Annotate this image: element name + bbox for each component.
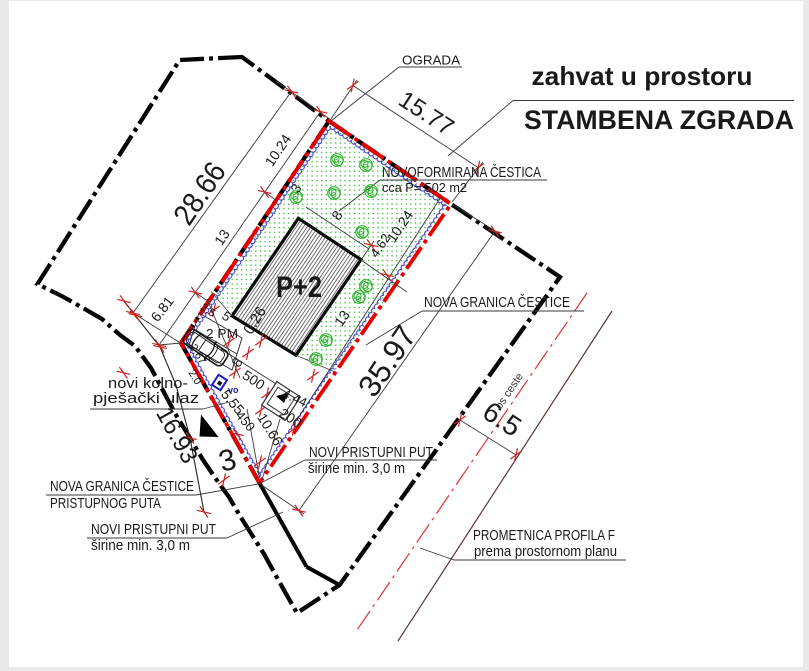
svg-text:NOVA GRANICA ČESTICE: NOVA GRANICA ČESTICE	[50, 478, 194, 495]
svg-text:cca P= 502 m2: cca P= 502 m2	[382, 180, 467, 195]
svg-text:NOVOFORMIRANA ČESTICA: NOVOFORMIRANA ČESTICA	[382, 164, 541, 181]
svg-text:NOVI PRISTUPNI PUT: NOVI PRISTUPNI PUT	[91, 521, 216, 538]
svg-text:zahvat u prostoru: zahvat u prostoru	[532, 61, 753, 91]
svg-text:NOVI PRISTUPNI PUT: NOVI PRISTUPNI PUT	[309, 444, 433, 461]
svg-text:STAMBENA ZGRADA: STAMBENA ZGRADA	[524, 105, 794, 135]
svg-text:OGRADA: OGRADA	[402, 53, 460, 68]
svg-text:prema prostornom planu: prema prostornom planu	[474, 543, 617, 560]
svg-text:P+2: P+2	[276, 271, 322, 304]
svg-text:PROMETNICA PROFILA F: PROMETNICA PROFILA F	[473, 527, 615, 544]
svg-text:širine min. 3,0 m: širine min. 3,0 m	[91, 537, 190, 554]
svg-text:pješački ulaz: pješački ulaz	[93, 390, 199, 407]
svg-text:NOVA GRANICA ČESTICE: NOVA GRANICA ČESTICE	[424, 294, 570, 311]
svg-text:širine min. 3,0 m: širine min. 3,0 m	[308, 460, 405, 477]
svg-text:PRISTUPNOG PUTA: PRISTUPNOG PUTA	[50, 495, 161, 512]
svg-text:2 PM: 2 PM	[206, 326, 238, 341]
